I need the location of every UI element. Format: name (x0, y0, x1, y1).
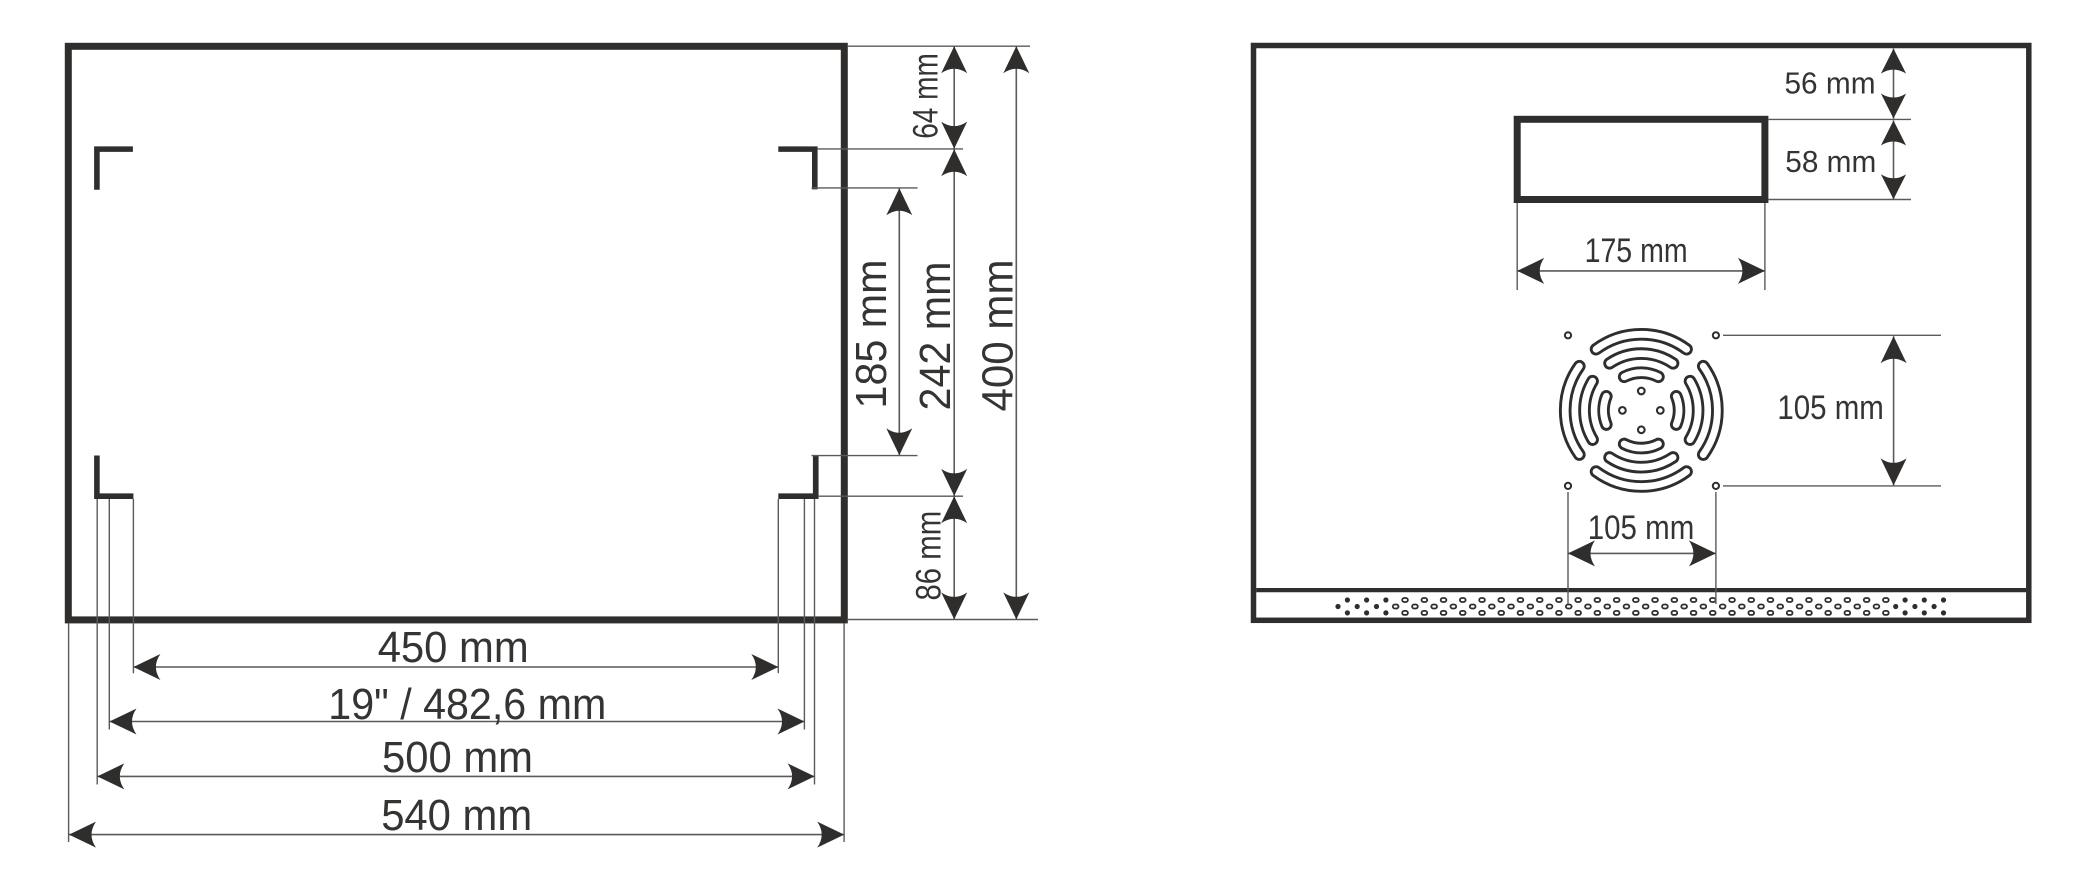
svg-text:185 mm: 185 mm (847, 260, 896, 409)
svg-text:105 mm: 105 mm (1588, 509, 1695, 547)
svg-text:242 mm: 242 mm (911, 262, 960, 411)
svg-text:175 mm: 175 mm (1585, 232, 1688, 270)
svg-text:58 mm: 58 mm (1785, 144, 1876, 179)
svg-text:56 mm: 56 mm (1785, 65, 1876, 100)
svg-text:540 mm: 540 mm (381, 791, 532, 840)
svg-text:400 mm: 400 mm (974, 260, 1023, 412)
svg-text:86 mm: 86 mm (910, 511, 949, 601)
svg-text:450 mm: 450 mm (378, 623, 529, 672)
svg-text:64 mm: 64 mm (906, 53, 945, 139)
svg-text:19" / 482,6 mm: 19" / 482,6 mm (328, 680, 606, 729)
svg-text:500 mm: 500 mm (382, 733, 533, 782)
svg-text:105 mm: 105 mm (1777, 389, 1884, 427)
